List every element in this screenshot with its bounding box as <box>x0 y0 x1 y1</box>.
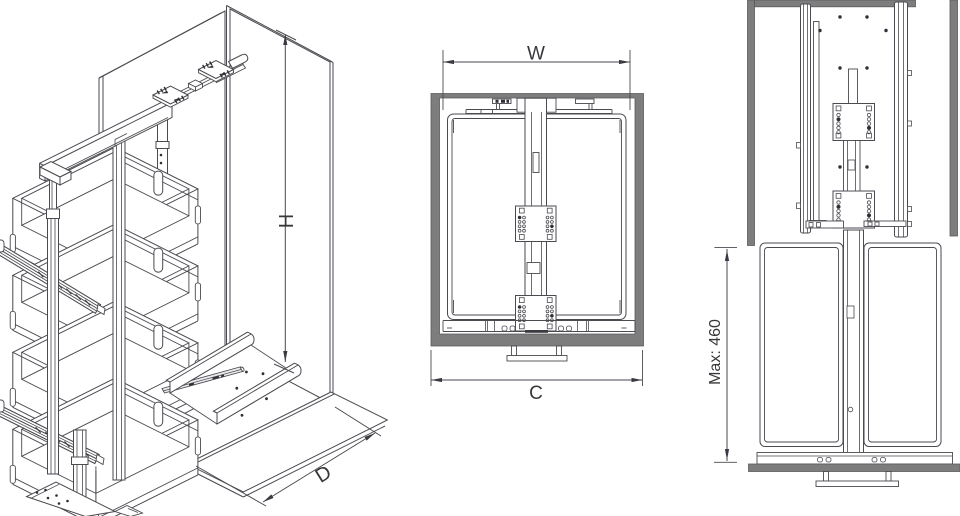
svg-text:H: H <box>276 214 298 228</box>
svg-text:Max: 460: Max: 460 <box>707 319 724 385</box>
svg-text:D: D <box>312 461 336 487</box>
svg-text:C: C <box>529 383 543 404</box>
svg-text:W: W <box>527 44 545 65</box>
